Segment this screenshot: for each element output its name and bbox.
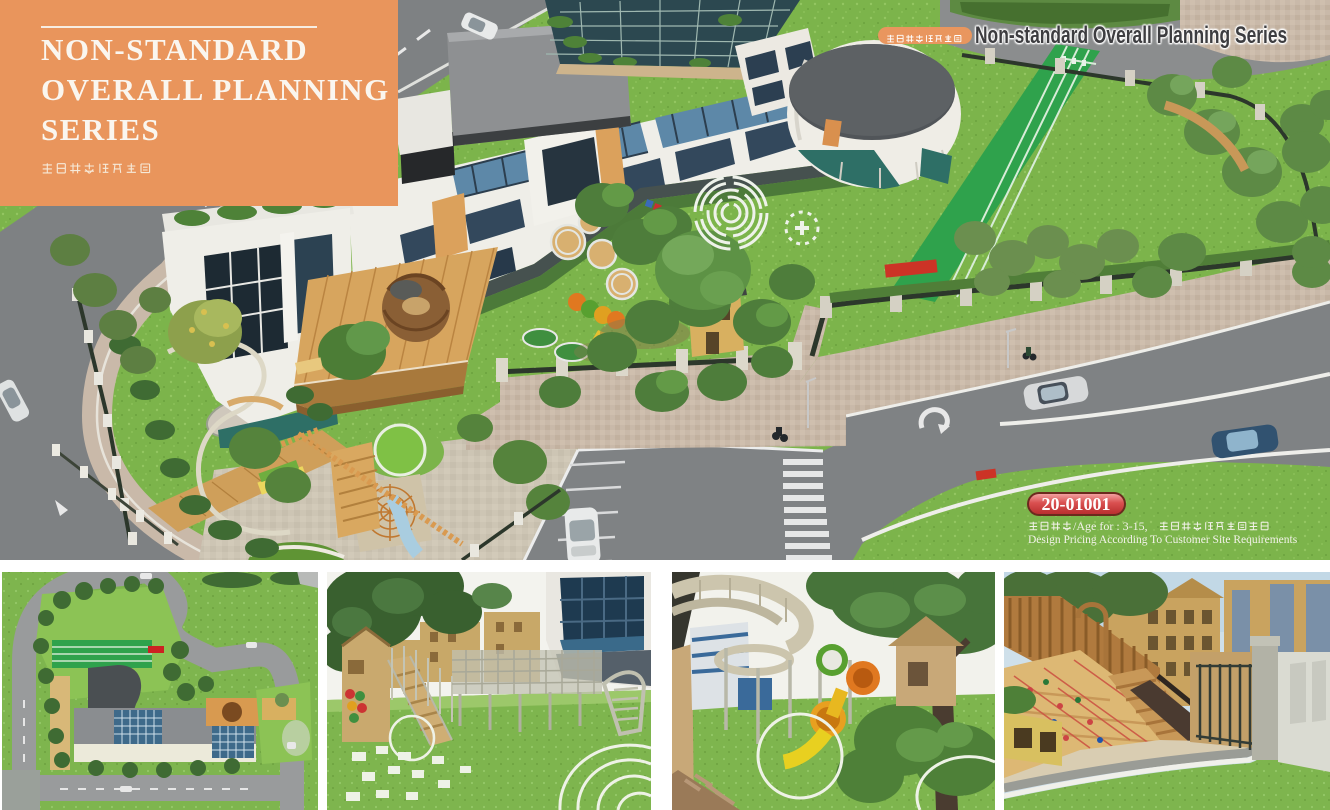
svg-text:20-01001: 20-01001 — [1042, 494, 1111, 514]
svg-text:/Age for : 3-15,: /Age for : 3-15, — [1073, 520, 1148, 533]
